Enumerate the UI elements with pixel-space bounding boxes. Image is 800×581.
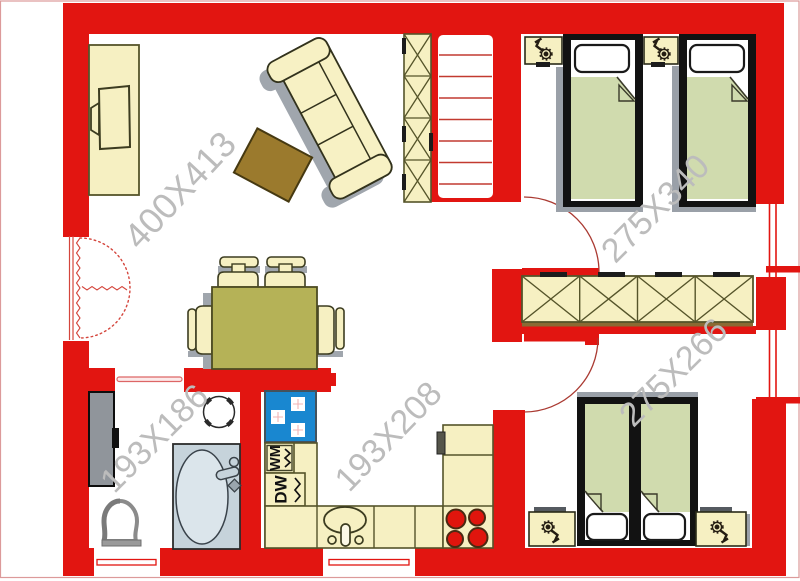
svg-text:DW: DW <box>271 474 290 503</box>
svg-text:WM: WM <box>268 445 284 471</box>
